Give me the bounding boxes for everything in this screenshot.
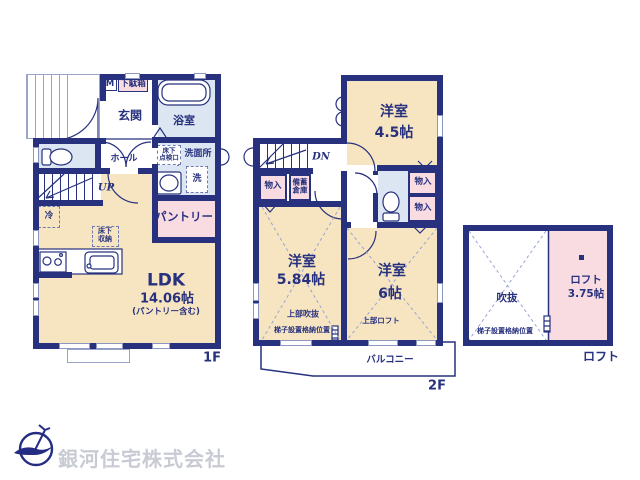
wall bbox=[463, 225, 613, 231]
label-dn: DN bbox=[312, 151, 330, 162]
bathroom-room bbox=[158, 80, 215, 137]
label-meter: M bbox=[106, 80, 114, 90]
wall bbox=[347, 222, 351, 228]
label-floor-2f: 2F bbox=[428, 380, 446, 395]
bedroom-45-room bbox=[347, 81, 437, 165]
label-floor-loft: ロフト bbox=[583, 350, 619, 363]
wall bbox=[463, 225, 469, 346]
wall bbox=[377, 222, 443, 228]
window bbox=[437, 283, 443, 303]
toilet-1f-room bbox=[39, 144, 95, 168]
label-washroom: 洗面所 bbox=[184, 149, 211, 159]
wall bbox=[259, 168, 313, 174]
label-underfloor-hatch: 床下点検口 bbox=[159, 148, 179, 163]
casement-window-1f bbox=[221, 149, 229, 165]
toilet-2f-room bbox=[378, 171, 408, 222]
label-washer: 洗 bbox=[192, 174, 201, 184]
wall bbox=[152, 141, 158, 148]
label-void: 吹抜 bbox=[497, 293, 518, 305]
wall bbox=[341, 75, 347, 143]
label-room45: 洋室 bbox=[380, 105, 408, 121]
stairs-1f bbox=[36, 174, 98, 200]
label-loft-size: 3.75帖 bbox=[568, 289, 604, 301]
window bbox=[33, 300, 39, 316]
wall bbox=[33, 168, 110, 174]
balcony-outline bbox=[261, 342, 455, 376]
label-loft-room: ロフト bbox=[570, 275, 602, 287]
wall bbox=[36, 272, 72, 278]
label-closet-a: 物入 bbox=[264, 182, 281, 192]
wall bbox=[152, 74, 158, 125]
label-room584-size: 5.84帖 bbox=[277, 273, 326, 289]
wall bbox=[152, 164, 158, 197]
label-underfloor-storage: 床下収納 bbox=[98, 228, 112, 244]
label-hall: ホール bbox=[110, 154, 137, 164]
label-closet-c: 物入 bbox=[414, 204, 431, 214]
label-floor-1f: 1F bbox=[203, 352, 221, 367]
window bbox=[253, 283, 259, 301]
window bbox=[416, 340, 436, 346]
company-name: 銀河住宅株式会社 bbox=[58, 443, 226, 472]
wall bbox=[377, 165, 443, 171]
window bbox=[194, 73, 206, 79]
exterior-stairs bbox=[26, 74, 100, 139]
void-cross-loft bbox=[469, 231, 546, 340]
window bbox=[368, 340, 398, 346]
wall bbox=[152, 137, 221, 143]
window bbox=[125, 73, 140, 79]
wall bbox=[100, 74, 106, 101]
window bbox=[253, 303, 259, 319]
window bbox=[152, 343, 170, 349]
window bbox=[59, 343, 90, 349]
label-fridge: 冷 bbox=[45, 212, 54, 222]
label-ldk-size: 14.06帖 bbox=[140, 293, 194, 308]
label-room6: 洋室 bbox=[378, 264, 406, 280]
wall bbox=[341, 75, 443, 81]
label-closet-b: 物入 bbox=[414, 178, 431, 188]
label-room6-loft-note: 上部ロフト bbox=[362, 317, 400, 325]
label-room584: 洋室 bbox=[288, 255, 316, 271]
label-stock-storage: 備蓄倉庫 bbox=[293, 179, 308, 196]
label-room45-size: 4.5帖 bbox=[375, 126, 414, 142]
label-bath: 浴室 bbox=[173, 115, 195, 127]
floorplan-canvas: 玄関 M 下駄箱 浴室 洗面所 床下点検口 洗 ホール UP 冷 床下収納 パン… bbox=[0, 0, 640, 480]
loft-marker-square bbox=[579, 255, 584, 260]
wall bbox=[607, 225, 613, 346]
label-balcony: バルコニー bbox=[366, 356, 413, 367]
wall bbox=[152, 195, 221, 201]
label-ldk: LDK bbox=[147, 271, 185, 290]
label-pantry: パントリー bbox=[155, 211, 213, 224]
label-genkan: 玄関 bbox=[118, 109, 142, 122]
wall bbox=[253, 201, 347, 207]
label-shoebox: 下駄箱 bbox=[120, 80, 146, 90]
porch-step bbox=[67, 349, 130, 363]
wall bbox=[215, 74, 221, 349]
exterior-stairs-treads bbox=[27, 75, 73, 138]
wall bbox=[463, 340, 613, 346]
label-room584-void-note: 上部吹抜 bbox=[287, 311, 319, 320]
stairs-2f bbox=[259, 144, 311, 168]
wall bbox=[373, 193, 378, 222]
window bbox=[33, 147, 39, 163]
label-loft-ladder: 梯子設置格納位置 bbox=[477, 328, 533, 336]
wall bbox=[152, 237, 221, 243]
wall bbox=[253, 138, 347, 144]
casement-window-2f bbox=[244, 148, 253, 166]
label-up: UP bbox=[98, 182, 114, 193]
label-room584-ladder-note: 梯子設置格納位置 bbox=[274, 327, 330, 335]
toilet-2f-door-arc bbox=[355, 173, 377, 195]
wall bbox=[373, 171, 378, 175]
wall bbox=[33, 200, 103, 206]
window bbox=[280, 340, 312, 346]
wall bbox=[341, 171, 347, 204]
window bbox=[33, 283, 39, 298]
window bbox=[33, 230, 39, 246]
window bbox=[96, 343, 123, 349]
company-logo-bird-icon bbox=[12, 422, 60, 470]
window bbox=[437, 115, 443, 137]
label-room6-size: 6帖 bbox=[378, 287, 402, 303]
label-ldk-note: (パントリー含む) bbox=[132, 308, 200, 318]
